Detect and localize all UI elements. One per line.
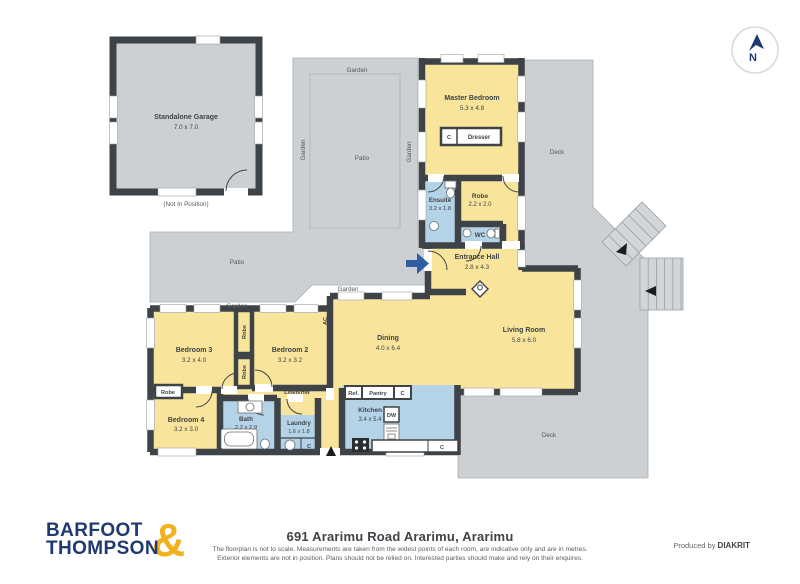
label-ref: Ref. — [348, 391, 359, 397]
label-ensuite: Ensuite — [429, 197, 452, 204]
label-dining-dims: 4.0 x 6.4 — [376, 345, 401, 352]
label-bedroom2-dims: 3.2 x 3.2 — [278, 357, 303, 364]
label-laundry-dims: 1.6 x 1.8 — [288, 429, 309, 435]
label-patio-top: Patio — [355, 155, 370, 162]
label-bench-c: C — [400, 391, 404, 397]
garage-door-gap — [224, 188, 248, 196]
label-deck-top: Deck — [550, 149, 565, 156]
label-linen: Linen/HW — [284, 390, 311, 396]
label-robe-box: Robe — [161, 390, 175, 396]
garage-note: (Not In Position) — [163, 201, 208, 208]
label-living-room: Living Room — [503, 327, 545, 334]
label-deck-bottom: Deck — [542, 432, 557, 439]
label-bath-dims: 2.2 x 2.9 — [235, 425, 257, 431]
label-dining: Dining — [377, 335, 399, 342]
label-dw: DW — [387, 413, 397, 419]
label-entrance-hall: Entrance Hall — [455, 254, 500, 261]
label-dresser: Dresser — [468, 135, 491, 141]
label-bedroom2: Bedroom 2 — [272, 347, 309, 354]
label-robe-col1: Robe — [242, 325, 248, 339]
label-master-bedroom: Master Bedroom — [444, 95, 499, 102]
logo-line2: THOMPSON — [46, 540, 176, 558]
label-garden-right: Garden — [406, 141, 413, 163]
label-kitchen-dims: 3.4 x 5.4 — [358, 417, 382, 423]
label-robe-master: Robe — [472, 193, 489, 200]
label-garden-left: Garden — [300, 139, 307, 161]
label-bedroom3-dims: 3.2 x 4.0 — [182, 357, 207, 364]
label-garden-top: Garden — [346, 67, 368, 74]
label-bath: Bath — [239, 416, 253, 423]
garage-name: Standalone Garage — [154, 114, 218, 121]
garage-dims: 7.0 x 7.0 — [174, 124, 199, 131]
label-master-bedroom-dims: 5.3 x 4.8 — [460, 105, 485, 112]
label-dresser-c: C — [447, 135, 451, 141]
label-kitchen-c: C — [440, 445, 444, 451]
label-garden-mid: Garden — [337, 286, 359, 293]
label-ac: AC — [323, 317, 329, 325]
produced-by: Produced by DIAKRIT — [673, 541, 750, 550]
label-laundry: Laundry — [287, 421, 311, 427]
label-robe-col2: Robe — [242, 365, 248, 379]
label-entrance-hall-dims: 2.8 x 4.3 — [465, 264, 490, 271]
garage: Standalone Garage 7.0 x 7.0 (Not In Posi… — [110, 36, 263, 208]
stove — [352, 438, 369, 452]
label-patio-mid: Patio — [230, 259, 245, 266]
label-laundry-c: C — [307, 444, 311, 450]
label-robe-master-dims: 2.2 x 2.0 — [468, 202, 492, 208]
producer-name: DIAKRIT — [718, 541, 750, 550]
label-kitchen: Kitchen — [358, 407, 382, 414]
label-wc: WC — [475, 232, 486, 239]
label-pantry: Pantry — [369, 391, 387, 397]
produced-by-text: Produced by — [673, 541, 715, 550]
label-bedroom4-dims: 3.2 x 3.0 — [174, 426, 199, 433]
label-bedroom3: Bedroom 3 — [176, 347, 213, 354]
label-bedroom4: Bedroom 4 — [168, 417, 205, 424]
label-living-room-dims: 5.8 x 6.0 — [512, 337, 537, 344]
compass-n: N — [749, 52, 757, 64]
label-ensuite-dims: 3.2 x 1.8 — [429, 206, 451, 212]
label-garden-band: Garden — [226, 303, 248, 310]
floorplan-drawing: Standalone Garage 7.0 x 7.0 (Not In Posi… — [0, 0, 800, 515]
floorplan-page: Standalone Garage 7.0 x 7.0 (Not In Posi… — [0, 0, 800, 584]
compass: N — [732, 27, 778, 73]
